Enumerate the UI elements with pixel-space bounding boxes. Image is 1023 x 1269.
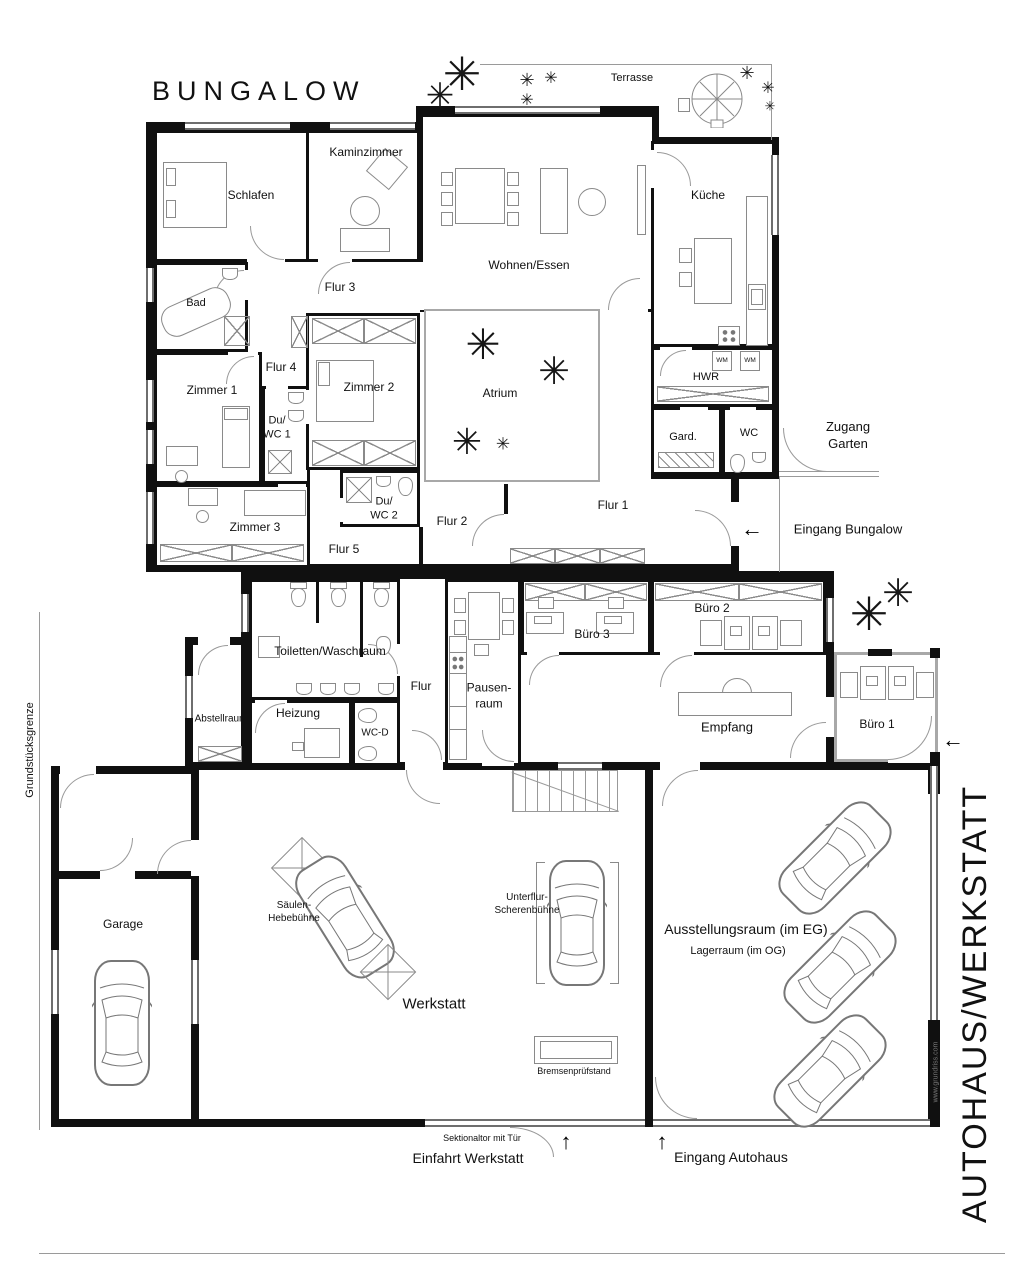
room-label-kaminzimmer: Kaminzimmer (329, 145, 402, 161)
sofa (540, 168, 568, 234)
monitor (604, 616, 622, 624)
room-label-buero3: Büro 3 (574, 627, 609, 643)
door-opening (405, 762, 443, 770)
plant-icon: ✳ (761, 81, 774, 97)
chair (175, 470, 188, 483)
brake-test-stand-inner (540, 1041, 612, 1059)
walkway-line (779, 477, 780, 572)
door-arc (412, 730, 442, 760)
bed (244, 490, 306, 516)
room-label-zimmer2: Zimmer 2 (344, 380, 395, 396)
boiler-pipe (292, 742, 304, 751)
wall (645, 766, 653, 1127)
plant-icon: ✳ (426, 79, 455, 113)
door-arc (529, 655, 559, 685)
door-opening (191, 840, 199, 876)
door-opening (245, 270, 251, 300)
sofa (340, 228, 390, 252)
room-label-wc-d: WC-D (361, 727, 388, 740)
chair (454, 598, 466, 613)
plant-icon: ✳ (496, 436, 510, 453)
room-label-flur: Flur (411, 679, 432, 695)
wall (868, 649, 892, 656)
room-label-buero2: Büro 2 (694, 601, 729, 617)
reception-desk (678, 692, 792, 716)
terrace-label: Terrasse (611, 71, 653, 85)
floorplan: BUNGALOW AUTOHAUS/WERKSTATT Grundstücksg… (0, 0, 1023, 1269)
sectional-gate (425, 1119, 645, 1127)
room-label-bad: Bad (186, 296, 206, 310)
door-opening (60, 766, 96, 774)
monitor (758, 626, 770, 636)
chair (502, 598, 514, 613)
boundary-line-left (39, 612, 40, 1130)
wall (51, 1119, 199, 1127)
window (191, 960, 199, 1024)
room-label-du-wc1: Du/ WC 1 (263, 414, 291, 443)
parasol-table-icon (688, 70, 746, 133)
pillow (318, 362, 330, 386)
room-label-zimmer3: Zimmer 3 (230, 520, 281, 536)
wardrobe (232, 544, 304, 562)
window (558, 762, 602, 770)
chair (679, 272, 692, 287)
side-table (700, 620, 722, 646)
closet (555, 548, 600, 564)
label-eingang-autohaus: Eingang Autohaus (674, 1148, 788, 1166)
room-label-kueche: Küche (691, 188, 725, 204)
shelf (198, 746, 242, 762)
plant-icon: ✳ (519, 71, 534, 89)
window (146, 268, 154, 302)
kitchen-sink-basin (751, 289, 763, 305)
section-label-autohaus: AUTOHAUS/WERKSTATT (953, 785, 997, 1223)
window (185, 676, 193, 718)
window (185, 122, 290, 130)
table (468, 592, 500, 640)
room-buero1 (834, 652, 938, 762)
plant-icon: ✳ (882, 575, 914, 613)
wall (191, 766, 199, 1127)
wardrobe (364, 440, 416, 466)
plant-icon: ✳ (452, 424, 482, 460)
zugang-garten-label: Zugang Garten (826, 419, 870, 453)
room-label-flur2: Flur 2 (437, 514, 468, 530)
door-opening (198, 637, 230, 645)
closet (291, 316, 308, 348)
door-opening (731, 502, 739, 546)
door-arc (100, 838, 133, 871)
room-label-du-wc2: Du/ WC 2 (370, 495, 398, 524)
wardrobe (312, 318, 364, 344)
wall (504, 484, 508, 514)
sink (378, 683, 394, 695)
room-label-ausstellungsraum: Ausstellungsraum (im EG) (664, 920, 827, 938)
door-arc (60, 774, 94, 808)
chair (507, 192, 519, 206)
chair (474, 644, 489, 656)
sink (376, 476, 391, 487)
staircase (512, 770, 618, 812)
window (771, 155, 779, 235)
side-table (780, 620, 802, 646)
chair (441, 192, 453, 206)
room-label-gard: Gard. (669, 430, 697, 444)
door-opening (660, 762, 700, 770)
side-table (916, 672, 934, 698)
car-icon (92, 958, 152, 1088)
showroom-glass-side (930, 766, 938, 1020)
room-label-abstellraum: Abstellraum (195, 713, 248, 726)
toilet (358, 746, 377, 761)
toilet (398, 477, 413, 496)
room-label-garage: Garage (103, 917, 143, 933)
monitor (534, 616, 552, 624)
side-table (840, 672, 858, 698)
toilet (374, 588, 389, 607)
door-arc (790, 722, 826, 758)
chair (454, 620, 466, 635)
room-label-flur5: Flur 5 (329, 542, 360, 558)
window (146, 430, 154, 464)
room-label-pausenraum: Pausen- raum (467, 680, 512, 711)
entrance-arrow-up-icon: ↑ (561, 1129, 572, 1155)
chair (502, 620, 514, 635)
door-arc (198, 645, 228, 675)
door-arc (783, 428, 827, 472)
desk (188, 488, 218, 506)
cabinet (655, 583, 739, 601)
window (146, 380, 154, 422)
wm-label: WM (716, 357, 728, 365)
sideboard (637, 165, 646, 235)
room-label-flur1: Flur 1 (598, 498, 629, 514)
side-table (350, 196, 380, 226)
door-arc (662, 770, 698, 806)
room-label-empfang: Empfang (701, 720, 753, 737)
terrace-edge-top (480, 64, 772, 65)
pillow (166, 200, 176, 218)
pillow (166, 168, 176, 186)
label-sektionaltor: Sektionaltor mit Tür (443, 1133, 521, 1145)
toilet (331, 588, 346, 607)
door-opening (100, 871, 135, 879)
cabinet (739, 583, 822, 601)
monitor (730, 626, 742, 636)
lift-bracket (536, 862, 545, 984)
room-label-toiletten: Toiletten/Waschraum (274, 644, 386, 660)
plant-icon: ✳ (520, 93, 533, 109)
chair (507, 212, 519, 226)
chair (608, 597, 624, 609)
monitor (894, 676, 906, 686)
window (330, 122, 415, 130)
room-label-lagerraum: Lagerraum (im OG) (690, 944, 785, 958)
wall (316, 579, 319, 623)
eingang-bungalow-label: Eingang Bungalow (794, 522, 902, 539)
toilet (730, 454, 745, 473)
plant-icon: ✳ (538, 353, 570, 391)
plant-icon: ✳ (765, 100, 776, 113)
counter (657, 386, 769, 402)
sink (222, 268, 238, 280)
plant-icon: ✳ (465, 324, 500, 366)
door-arc (472, 514, 504, 546)
sink (344, 683, 360, 695)
door-opening (247, 259, 285, 265)
wall (930, 648, 940, 658)
label-saeulen-hebebuehne: Säulen- Hebebühne (268, 899, 320, 925)
room-label-atrium: Atrium (483, 386, 518, 402)
door-opening (527, 649, 559, 655)
car-icon (768, 791, 902, 925)
boundary-line-bottom (39, 1253, 1005, 1254)
wall (419, 527, 423, 568)
window (826, 598, 834, 642)
chair (196, 510, 209, 523)
dining-table (455, 168, 505, 224)
chair (441, 212, 453, 226)
door-arc (655, 1077, 697, 1119)
desk (166, 446, 198, 466)
room-label-zimmer1: Zimmer 1 (187, 383, 238, 399)
plan-title: BUNGALOW (152, 76, 366, 107)
window (51, 950, 59, 1014)
chair (538, 597, 554, 609)
monitor (866, 676, 878, 686)
wall (930, 752, 940, 764)
room-label-heizung: Heizung (276, 706, 320, 722)
wardrobe (364, 318, 416, 344)
toilet (358, 708, 377, 723)
window (146, 492, 154, 544)
entrance-arrow-up-icon: ↑ (657, 1129, 668, 1155)
room-label-flur3: Flur 3 (325, 280, 356, 296)
room-label-flur4: Flur 4 (266, 360, 297, 376)
plant-icon: ✳ (544, 71, 557, 87)
cabinet (525, 583, 585, 601)
sink (320, 683, 336, 695)
coat-rail (658, 452, 714, 468)
closet (600, 548, 645, 564)
door-opening (266, 386, 288, 392)
window (241, 594, 249, 632)
room-label-wc: WC (740, 426, 758, 440)
room-label-buero1: Büro 1 (859, 717, 894, 733)
closet (510, 548, 555, 564)
label-unterflur-scherenbuehne: Unterflur- Scherenbühne (494, 891, 559, 917)
wm-label: WM (744, 357, 756, 365)
boiler (304, 728, 340, 758)
wall (245, 571, 834, 579)
lift-bracket (610, 862, 619, 984)
wall (51, 766, 59, 1127)
stove (718, 326, 740, 346)
shower (346, 477, 372, 503)
toilet (291, 588, 306, 607)
property-boundary-label: Grundstücksgrenze (23, 702, 37, 797)
chair (679, 248, 692, 263)
door-arc (157, 840, 191, 874)
garden-path (779, 471, 879, 472)
wall (191, 1119, 425, 1127)
kitchen-sink (449, 706, 467, 730)
shower (224, 316, 250, 346)
wardrobe (312, 440, 364, 466)
door-arc (695, 510, 731, 546)
room-label-schlafen: Schlafen (228, 188, 275, 204)
wall-opening (420, 262, 426, 310)
wardrobe (160, 544, 232, 562)
coffee-table (578, 188, 606, 216)
door-opening (680, 407, 708, 413)
pillow (224, 408, 248, 420)
door-arc (660, 655, 692, 687)
label-einfahrt-werkstatt: Einfahrt Werkstatt (412, 1149, 523, 1167)
garden-path (779, 476, 879, 477)
stove (449, 652, 467, 674)
label-bremsenpruefstand: Bremsenprüfstand (537, 1066, 611, 1078)
entrance-arrow-left-icon: ← (942, 727, 964, 753)
kitchen-island (694, 238, 732, 304)
kitchen-counter (746, 196, 768, 346)
chair (441, 172, 453, 186)
terrace-chair (678, 98, 690, 112)
door-opening (730, 407, 756, 413)
sink (752, 452, 766, 463)
door-opening (826, 697, 834, 737)
watermark: www.grundriss.com (931, 1042, 940, 1103)
sink (296, 683, 312, 695)
entrance-arrow-left-icon: ← (741, 516, 763, 542)
door-opening (306, 390, 312, 424)
door-arc (406, 770, 440, 804)
room-label-wohnen: Wohnen/Essen (488, 258, 569, 274)
plant-icon: ✳ (739, 64, 754, 82)
room-label-werkstatt: Werkstatt (402, 994, 465, 1014)
car-icon (547, 858, 607, 988)
chair (507, 172, 519, 186)
room-label-hwr: HWR (693, 370, 719, 384)
shower (268, 450, 292, 474)
sink (288, 392, 304, 404)
